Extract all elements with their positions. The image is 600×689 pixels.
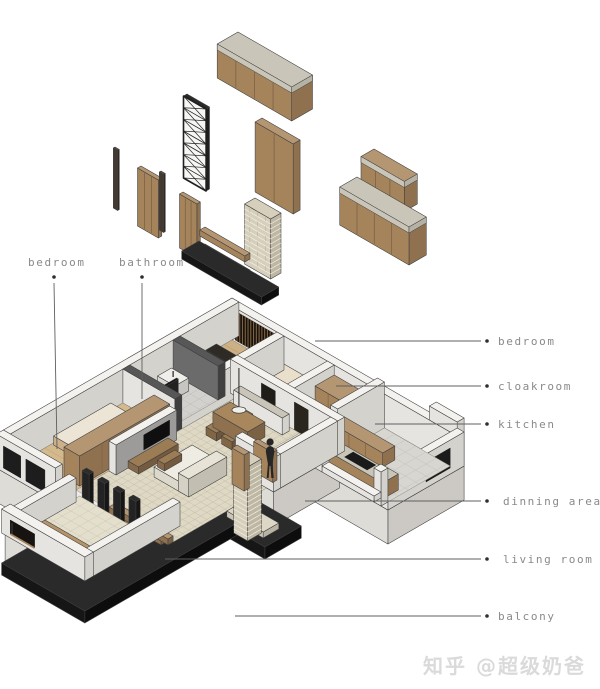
label-bathroom: bathroom [119, 256, 185, 269]
label-living-room: living room [503, 553, 593, 566]
label-cloakroom: cloakroom [498, 380, 572, 393]
label-kitchen: kitchen [498, 418, 556, 431]
watermark-zhihu: 知乎 @超级奶爸 [423, 650, 586, 679]
label-balcony: balcony [498, 610, 556, 623]
label-bedroom-right: bedroom [498, 335, 556, 348]
label-dinning-area: dinning area [503, 495, 600, 508]
diagram-canvas: bedroom bathroom bedroom cloakroom kitch… [0, 0, 600, 689]
label-bedroom-left: bedroom [28, 256, 86, 269]
